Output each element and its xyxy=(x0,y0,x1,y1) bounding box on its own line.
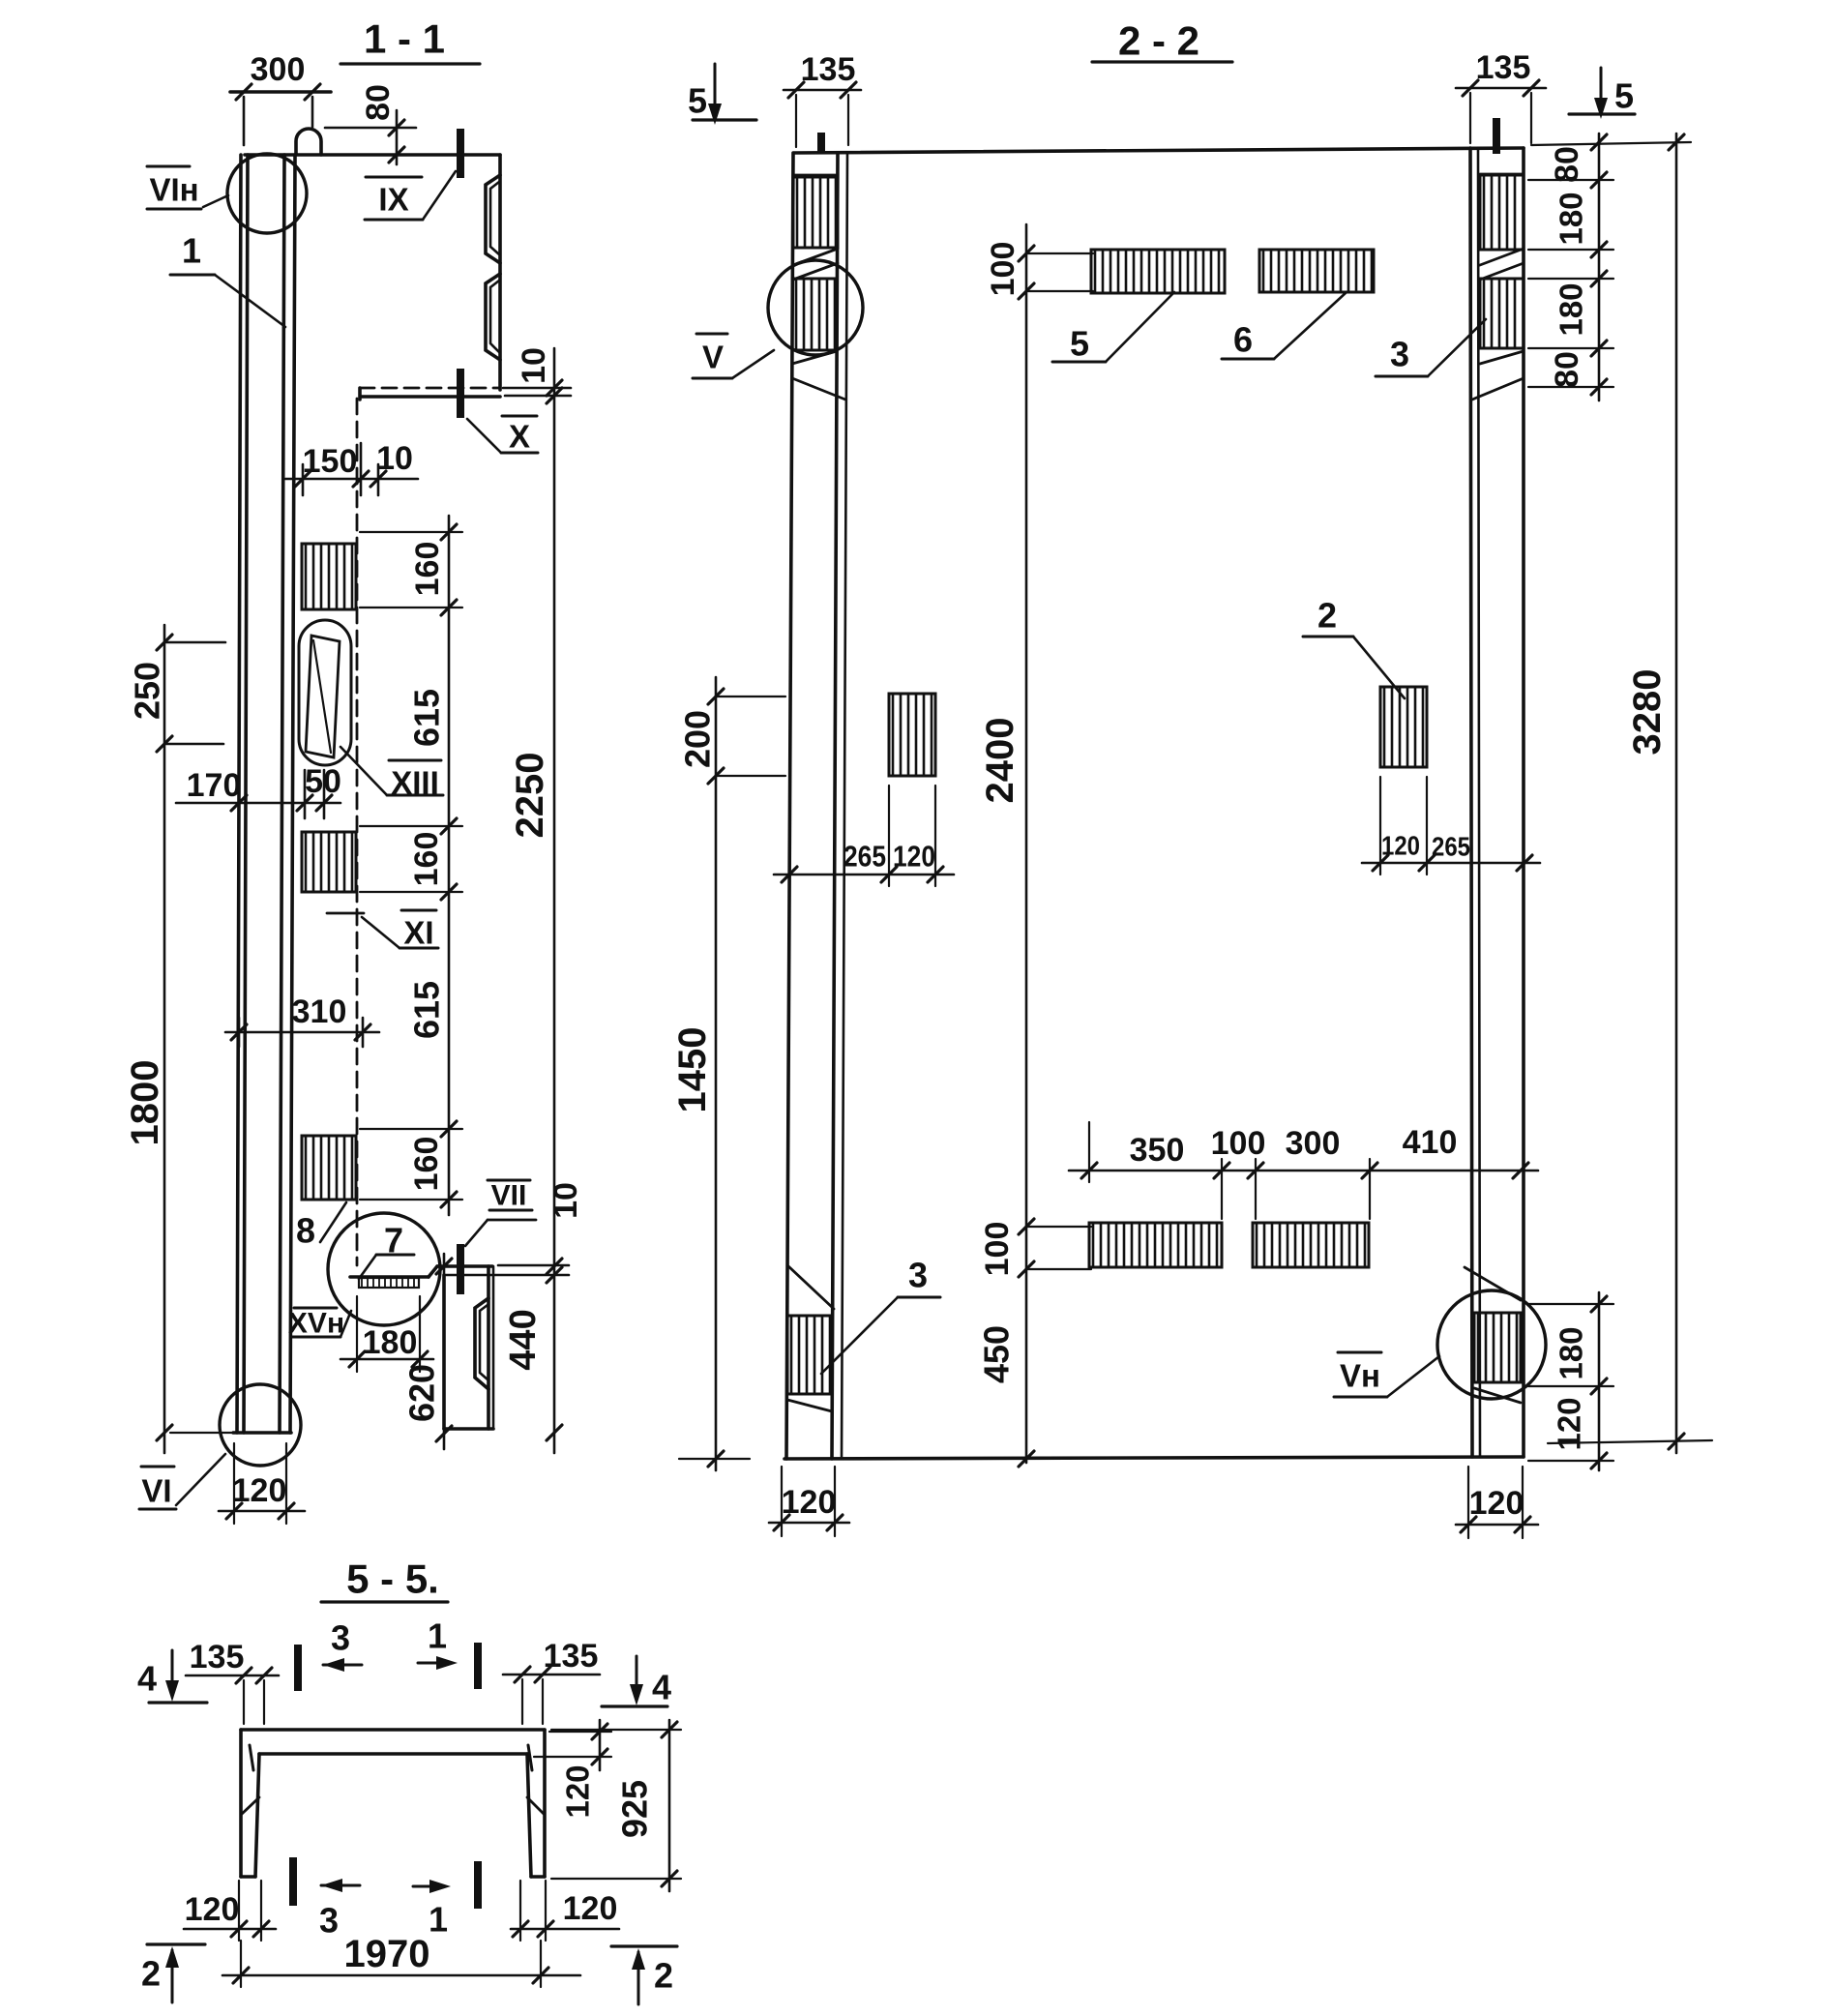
svg-text:10: 10 xyxy=(376,440,413,477)
svg-text:2: 2 xyxy=(1317,596,1337,636)
svg-text:2 - 2: 2 - 2 xyxy=(1118,18,1199,64)
svg-text:3: 3 xyxy=(319,1901,339,1941)
svg-text:120: 120 xyxy=(893,840,935,874)
svg-text:120: 120 xyxy=(185,1891,240,1928)
svg-text:1: 1 xyxy=(429,1900,448,1940)
svg-text:V: V xyxy=(702,340,724,375)
svg-text:3280: 3280 xyxy=(1626,669,1669,756)
svg-text:VI: VI xyxy=(141,1473,171,1509)
svg-text:120: 120 xyxy=(1381,831,1420,861)
svg-text:X: X xyxy=(509,419,530,455)
svg-text:160: 160 xyxy=(408,832,445,887)
svg-text:10: 10 xyxy=(516,347,552,384)
svg-text:2250: 2250 xyxy=(509,753,551,839)
svg-text:120: 120 xyxy=(560,1764,596,1818)
svg-text:1: 1 xyxy=(428,1616,447,1656)
svg-text:100: 100 xyxy=(1211,1125,1266,1162)
svg-text:180: 180 xyxy=(1554,282,1589,336)
svg-text:3: 3 xyxy=(908,1256,928,1295)
svg-text:135: 135 xyxy=(801,51,856,88)
svg-text:120: 120 xyxy=(782,1484,837,1521)
svg-text:VII: VII xyxy=(491,1180,527,1212)
svg-text:620: 620 xyxy=(402,1364,442,1422)
svg-text:1970: 1970 xyxy=(344,1933,430,1975)
svg-text:135: 135 xyxy=(544,1638,599,1675)
svg-text:6: 6 xyxy=(1233,320,1253,360)
svg-text:80: 80 xyxy=(360,84,397,121)
svg-text:Vн: Vн xyxy=(1340,1358,1380,1394)
svg-text:200: 200 xyxy=(678,710,718,768)
svg-text:615: 615 xyxy=(407,689,447,747)
svg-text:3: 3 xyxy=(331,1618,350,1658)
svg-text:10: 10 xyxy=(548,1182,584,1219)
svg-text:VIн: VIн xyxy=(149,172,198,208)
svg-text:135: 135 xyxy=(1476,49,1531,86)
svg-text:80: 80 xyxy=(1549,146,1585,183)
svg-text:265: 265 xyxy=(1432,832,1470,862)
svg-text:410: 410 xyxy=(1403,1124,1458,1161)
svg-text:4: 4 xyxy=(652,1668,671,1707)
svg-text:440: 440 xyxy=(503,1309,544,1370)
svg-text:2: 2 xyxy=(141,1954,161,1994)
svg-text:1 - 1: 1 - 1 xyxy=(364,16,445,62)
svg-text:150: 150 xyxy=(303,443,358,480)
svg-text:120: 120 xyxy=(1469,1485,1524,1522)
svg-text:1: 1 xyxy=(182,231,201,271)
svg-text:1800: 1800 xyxy=(124,1060,166,1146)
svg-text:100: 100 xyxy=(979,1222,1016,1277)
svg-text:160: 160 xyxy=(408,1137,445,1192)
svg-text:180: 180 xyxy=(1554,192,1589,245)
svg-text:120: 120 xyxy=(232,1472,287,1509)
svg-text:300: 300 xyxy=(1286,1125,1341,1162)
svg-text:4: 4 xyxy=(137,1659,157,1699)
svg-text:160: 160 xyxy=(409,542,446,597)
svg-text:615: 615 xyxy=(407,981,447,1039)
svg-text:450: 450 xyxy=(977,1325,1017,1383)
svg-text:XVн: XVн xyxy=(288,1308,344,1340)
svg-text:1450: 1450 xyxy=(671,1027,714,1113)
svg-text:80: 80 xyxy=(1549,351,1585,388)
svg-text:5: 5 xyxy=(1070,324,1089,364)
svg-text:5: 5 xyxy=(688,81,707,121)
svg-text:8: 8 xyxy=(296,1211,315,1251)
svg-text:135: 135 xyxy=(190,1639,245,1675)
svg-text:3: 3 xyxy=(1390,335,1409,374)
svg-text:170: 170 xyxy=(187,767,242,804)
svg-text:300: 300 xyxy=(251,51,306,88)
svg-text:180: 180 xyxy=(363,1324,418,1361)
svg-text:925: 925 xyxy=(615,1780,655,1838)
svg-text:5: 5 xyxy=(1614,76,1634,116)
svg-text:2: 2 xyxy=(654,1956,673,1996)
svg-text:310: 310 xyxy=(292,993,347,1030)
svg-text:265: 265 xyxy=(844,840,886,874)
svg-text:120: 120 xyxy=(563,1890,618,1927)
svg-text:2400: 2400 xyxy=(979,718,1021,804)
svg-text:180: 180 xyxy=(1554,1326,1589,1379)
svg-text:250: 250 xyxy=(128,662,167,720)
svg-text:XI: XI xyxy=(403,915,433,951)
svg-text:100: 100 xyxy=(985,242,1021,297)
svg-text:IX: IX xyxy=(378,182,408,218)
svg-text:350: 350 xyxy=(1130,1132,1185,1169)
svg-text:5 - 5.: 5 - 5. xyxy=(346,1556,439,1602)
svg-text:50: 50 xyxy=(305,763,341,800)
